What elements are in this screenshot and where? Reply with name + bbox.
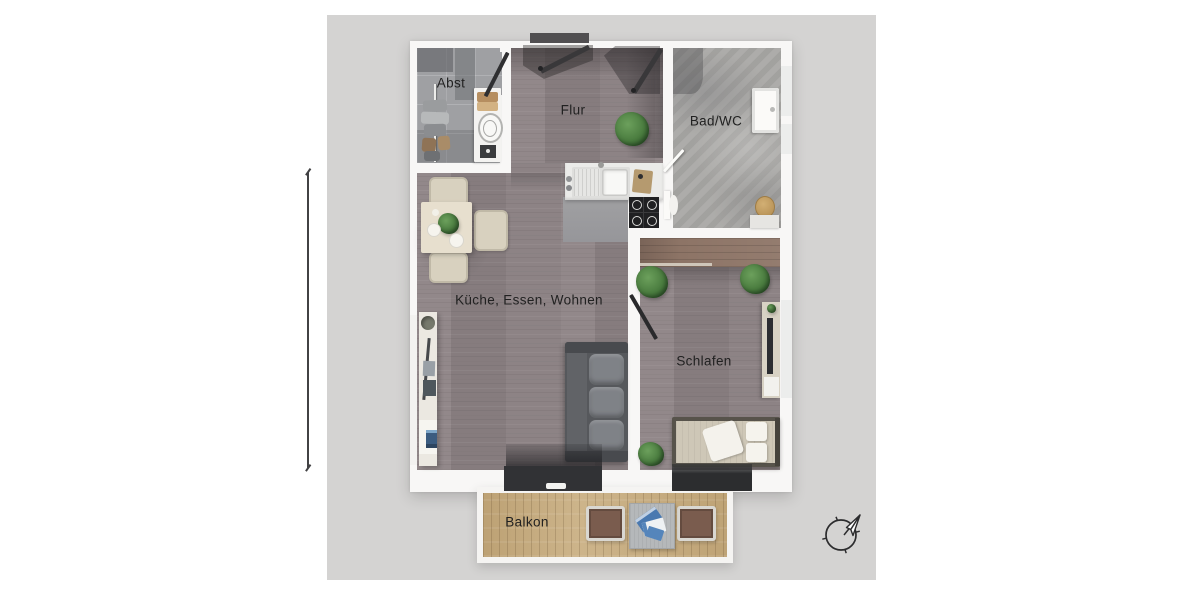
schlafen-plant-right: [740, 264, 770, 294]
dresser-plant: [767, 304, 776, 313]
dining-chair-right: [474, 210, 508, 251]
flur-plant: [615, 112, 649, 146]
sideboard-frame: [423, 361, 436, 376]
faucet: [598, 162, 604, 168]
clothes-item: [421, 112, 449, 125]
table-plate: [427, 223, 441, 237]
dresser-tv: [767, 318, 773, 374]
shower-drain: [770, 107, 775, 112]
towel-stack: [477, 102, 498, 111]
sideboard-bowl: [421, 316, 435, 330]
washer-knob: [486, 149, 490, 153]
room-label-bad-wc: Bad/WC: [690, 114, 742, 129]
schlafen-plant-left: [636, 266, 668, 298]
abst-right-wall-top: [500, 43, 511, 52]
clothes-item: [424, 151, 440, 161]
room-label-schlafen: Schlafen: [676, 354, 731, 369]
sofa-cushion: [589, 354, 624, 385]
floor-plan-scene: Abst Flur Bad/WC Küche, Essen, Wohnen Sc…: [0, 0, 1200, 600]
sofa-seat: [567, 353, 587, 451]
room-label-kueche-essen-wohnen: Küche, Essen, Wohnen: [455, 293, 603, 308]
burner: [647, 216, 657, 226]
kitchen-floor-mat: [563, 197, 628, 242]
bad-window-recess-1: [781, 66, 792, 116]
entrance-door-jamb: [530, 33, 589, 43]
burner: [647, 200, 657, 210]
bath-step-shelf: [750, 215, 779, 228]
bad-corner-shadow: [673, 48, 703, 94]
bad-left-wall-top: [663, 48, 673, 145]
room-label-abst: Abst: [437, 76, 465, 91]
kitchen-bottle: [566, 176, 572, 182]
sofa-armrest-top: [565, 342, 628, 353]
table-plant: [438, 213, 459, 234]
bed-headboard: [775, 418, 780, 466]
clothes-item: [424, 124, 446, 137]
room-label-flur: Flur: [561, 103, 586, 118]
abst-bottom-wall: [410, 163, 511, 173]
kitchen-bottle: [566, 185, 572, 191]
sideboard-books: [426, 430, 437, 448]
dimension-line: [307, 172, 309, 468]
schlafen-plant-bottom: [638, 442, 664, 466]
bed-pillow: [746, 443, 767, 462]
clothes-item: [423, 99, 448, 112]
balcony-door-handle: [546, 483, 566, 489]
dining-chair-bottom: [429, 252, 468, 283]
toilet-bowl: [669, 195, 678, 215]
abst-shadow-patch-1: [417, 48, 453, 72]
sink-drainboard: [574, 169, 600, 196]
bad-bottom-wall: [628, 228, 781, 238]
balcony-chair-right: [677, 506, 716, 541]
clothes-item: [437, 136, 450, 151]
living-window-recess: [410, 315, 417, 465]
sofa-cushion: [589, 387, 624, 418]
room-label-balkon: Balkon: [505, 515, 548, 530]
flur-second-door-handle: [631, 88, 636, 93]
abst-shadow-patch-2: [455, 48, 475, 100]
table-plate: [449, 233, 464, 248]
entrance-door-handle: [538, 66, 543, 71]
washer-drum-inner: [483, 120, 497, 137]
balcony-chair-left: [586, 506, 625, 541]
bed-pillow: [746, 422, 767, 441]
compass-north-arrow-icon: [817, 508, 869, 560]
shower-tray: [752, 88, 779, 133]
dresser-box: [764, 377, 779, 396]
sink-basin: [602, 169, 628, 196]
schlafen-window: [672, 464, 752, 491]
bad-window-recess-2: [781, 124, 792, 154]
burner: [632, 216, 642, 226]
table-cup: [432, 209, 439, 216]
burner: [632, 200, 642, 210]
cutting-board: [632, 169, 653, 194]
sideboard-frame: [423, 380, 436, 396]
dimension-line-tick-bottom: [305, 464, 311, 471]
pepper-grinder: [638, 174, 643, 179]
schlafen-window-recess: [781, 300, 792, 398]
